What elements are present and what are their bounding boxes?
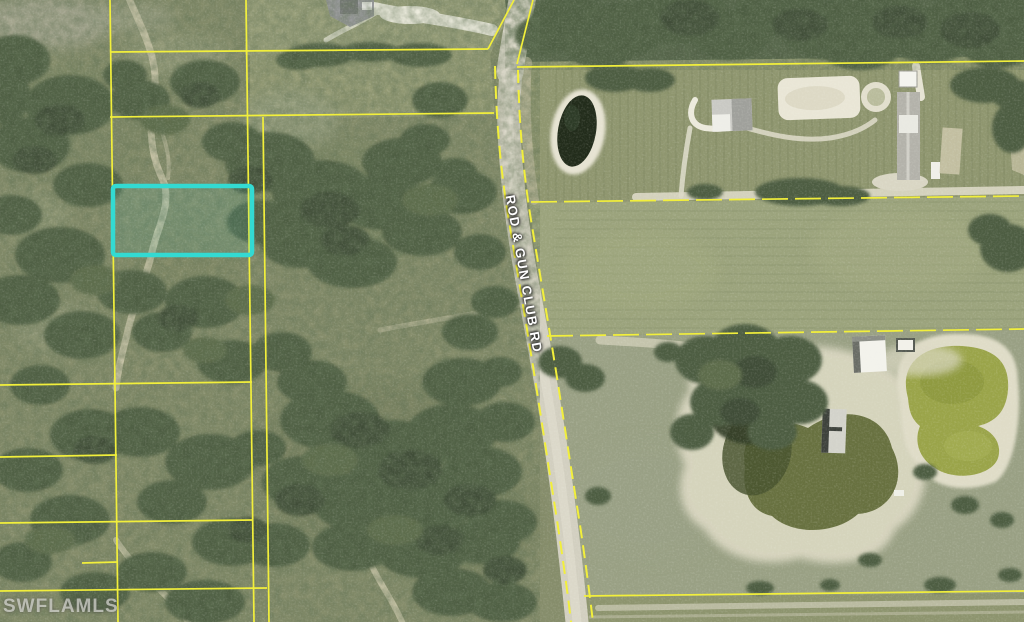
map-viewport[interactable]: ROD & GUN CLUB RD SWFLAMLS [0,0,1024,622]
highlighted-parcel[interactable] [113,186,252,255]
image-grain [0,0,1024,622]
aerial-imagery [0,0,1024,622]
